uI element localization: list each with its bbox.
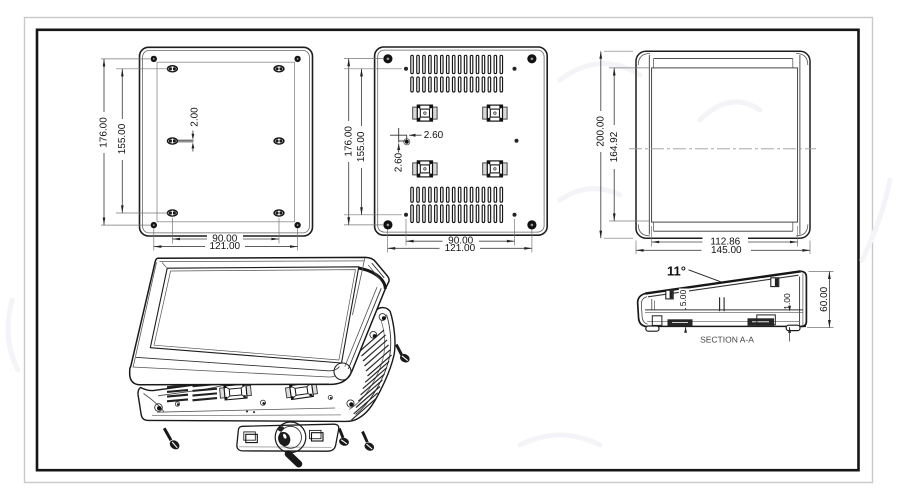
svg-text:121.00: 121.00	[210, 241, 241, 252]
svg-text:121.00: 121.00	[445, 243, 476, 254]
svg-text:164.92: 164.92	[609, 131, 620, 162]
svg-text:145.00: 145.00	[711, 245, 742, 256]
svg-text:5.00: 5.00	[678, 289, 688, 306]
svg-text:176.00: 176.00	[99, 117, 110, 148]
svg-text:155.00: 155.00	[356, 131, 367, 162]
svg-text:200.00: 200.00	[595, 116, 606, 147]
svg-text:2.60: 2.60	[424, 130, 444, 141]
svg-text:60.00: 60.00	[819, 286, 830, 311]
svg-text:2.60: 2.60	[393, 152, 404, 172]
svg-text:11°: 11°	[667, 263, 686, 278]
svg-text:SECTION A-A: SECTION A-A	[700, 334, 754, 344]
svg-text:176.00: 176.00	[343, 126, 354, 157]
svg-text:2.00: 2.00	[190, 107, 201, 127]
svg-text:155.00: 155.00	[117, 123, 128, 154]
